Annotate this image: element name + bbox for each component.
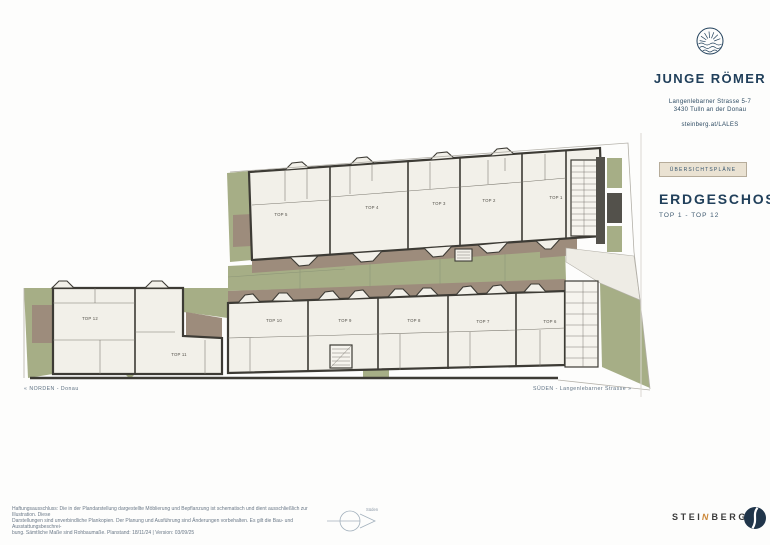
brand-block: JUNGE RÖMER Langenlebarner Strasse 5-7 3…: [650, 26, 770, 128]
unit-label-top5: TOP 5: [274, 212, 288, 217]
neighbor-garden: [607, 226, 622, 252]
compass-label: Süden: [366, 507, 379, 512]
bay-window: [350, 157, 374, 165]
overview-plans-button[interactable]: ÜBERSICHTSPLÄNE: [659, 162, 747, 177]
floor-title: ERDGESCHOSS: [659, 191, 770, 207]
unit-label-top4: TOP 4: [365, 205, 379, 210]
steinberg-circle-mark-icon: [743, 506, 767, 530]
brand-website: steinberg.at/LALES: [650, 122, 770, 128]
disclaimer-line1: Haftungsausschluss: Die in der Plandarst…: [12, 506, 312, 518]
unit-label-top2: TOP 2: [482, 198, 496, 203]
publisher-wordmark: STEINBERG: [672, 512, 748, 522]
terrace-upper-left: [233, 214, 252, 247]
direction-label-north: « NORDEN - Donau: [24, 386, 79, 392]
publisher-part1: STEI: [672, 512, 702, 522]
unit-label-top11: TOP 11: [171, 352, 187, 357]
neighbor-block: [596, 157, 605, 244]
disclaimer-text: Haftungsausschluss: Die in der Plandarst…: [12, 506, 312, 536]
bay-window: [285, 162, 309, 170]
unit-label-top1: TOP 1: [549, 195, 563, 200]
loggia-grid: [565, 281, 598, 367]
compass-icon: Süden: [327, 507, 379, 531]
unit-label-top3: TOP 3: [432, 201, 446, 206]
direction-label-south: SÜDEN - Langenlebarner Strasse »: [533, 385, 631, 392]
neighbor-block: [607, 193, 622, 223]
stairwell-center: [330, 345, 352, 368]
brand-address-line2: 3430 Tulln an der Donau: [650, 106, 770, 114]
bay-window: [145, 281, 169, 288]
sun-waves-icon: [695, 26, 725, 56]
unit-label-top9: TOP 9: [338, 318, 352, 323]
floor-subtitle: TOP 1 - TOP 12: [659, 212, 719, 219]
bay-window: [52, 281, 74, 288]
garden-right: [600, 282, 650, 388]
neighbor-blocks: [596, 157, 622, 252]
stairwell-upper: [571, 160, 598, 236]
terrace-left: [32, 305, 53, 343]
disclaimer-line2: Darstellungen sind unverbindliche Planko…: [12, 518, 312, 530]
unit-label-top10: TOP 10: [266, 318, 282, 323]
building-lower-right-block: [228, 291, 565, 373]
unit-label-top12: TOP 12: [82, 316, 98, 321]
unit-label-top7: TOP 7: [476, 319, 490, 324]
disclaimer-line3: bung. Sämtliche Maße sind Rohbaumaße. Pl…: [12, 530, 312, 536]
garden-shed: [455, 249, 472, 261]
brand-name: JUNGE RÖMER: [650, 71, 770, 86]
unit-label-top8: TOP 8: [407, 318, 421, 323]
neighbor-garden: [607, 158, 622, 188]
brand-address: Langenlebarner Strasse 5-7 3430 Tulln an…: [650, 98, 770, 114]
brand-address-line1: Langenlebarner Strasse 5-7: [650, 98, 770, 106]
unit-label-top6: TOP 6: [543, 319, 557, 324]
plan-sheet-page: TOP 5 TOP 4 TOP 3 TOP 2 TOP 1 TOP 12 TOP…: [0, 0, 770, 545]
